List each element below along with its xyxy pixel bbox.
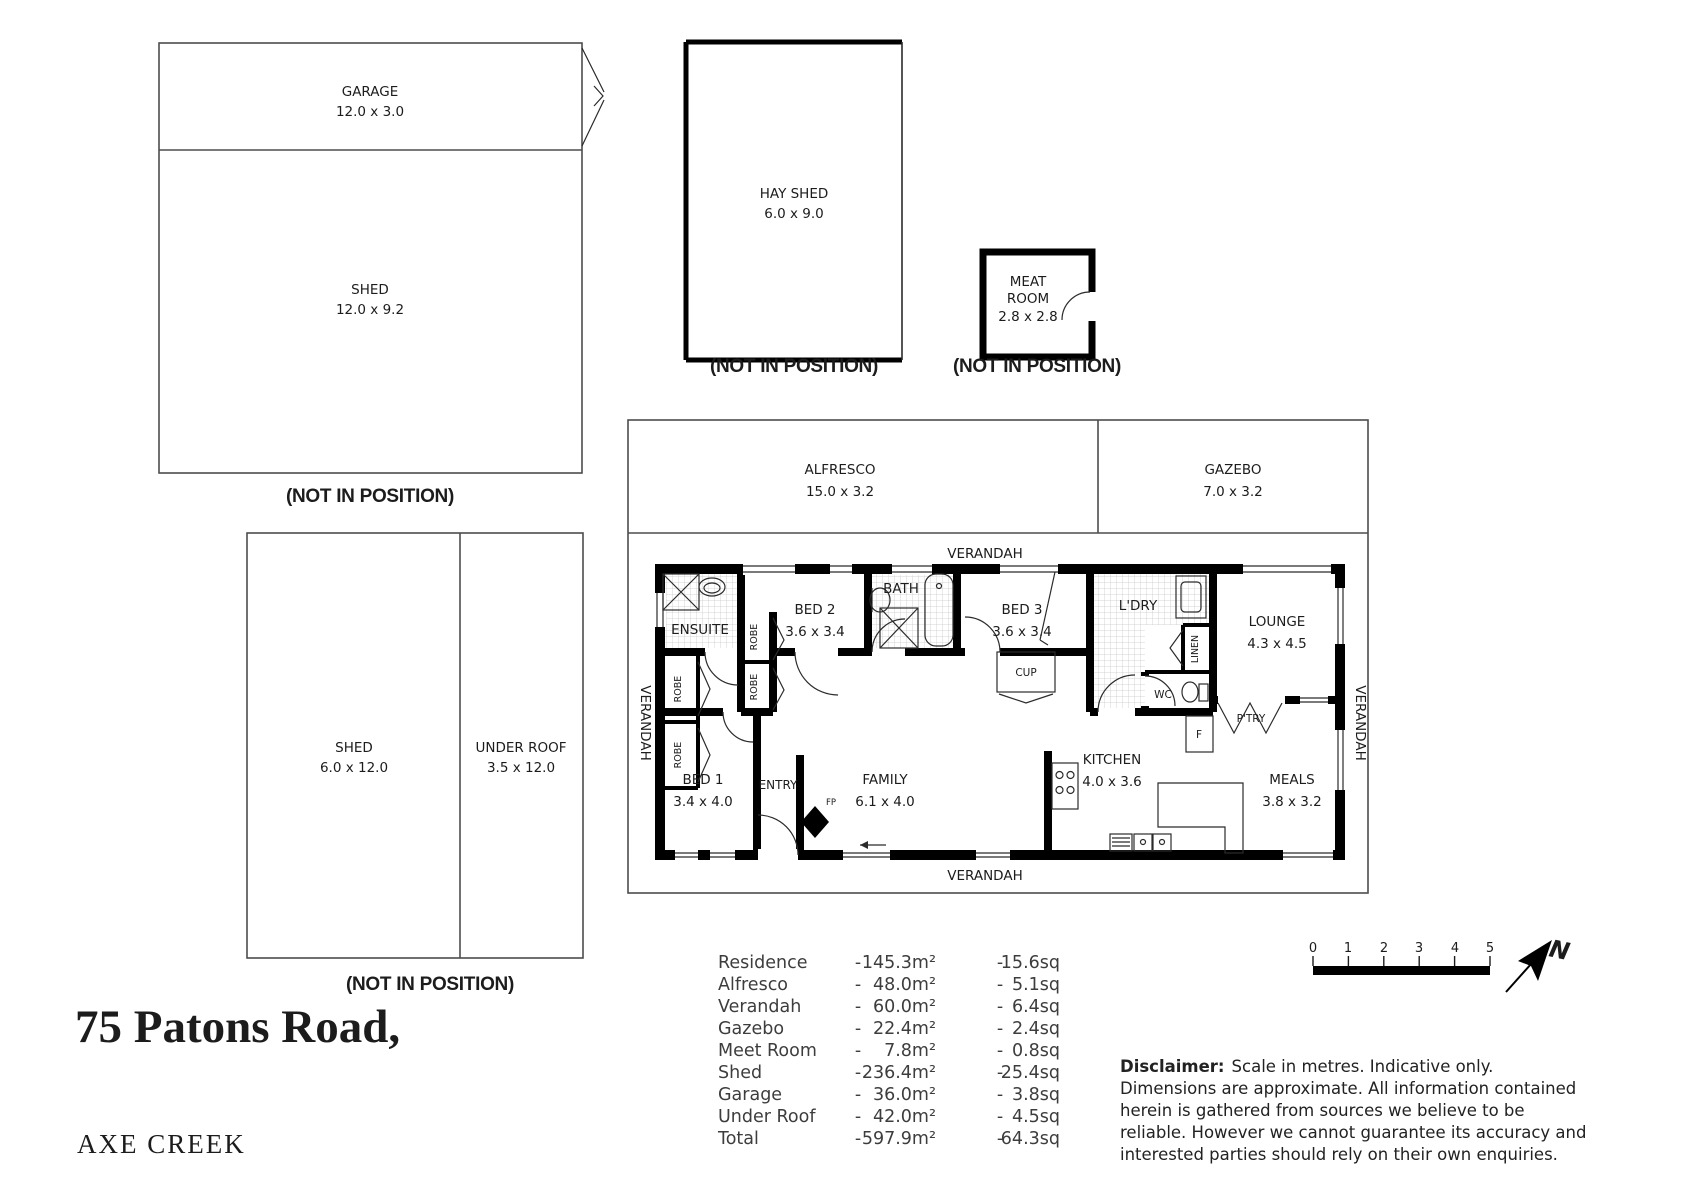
disclaimer-line-5: interested parties should rely on their … <box>1120 1145 1558 1164</box>
hay-shed-label: HAY SHED <box>760 186 829 202</box>
area-sq: 5.1sq <box>1012 975 1060 995</box>
dash: - <box>855 1063 861 1083</box>
area-name: Gazebo <box>718 1019 784 1039</box>
under-roof-label: UNDER ROOF <box>476 740 567 756</box>
verandah-label-left: VERANDAH <box>637 685 653 760</box>
lounge-dims: 4.3 x 4.5 <box>1247 636 1307 652</box>
bed3-dims: 3.6 x 3.4 <box>992 624 1052 640</box>
bed2-label: BED 2 <box>794 602 835 618</box>
scale-tick-label: 5 <box>1486 941 1494 956</box>
shed-large-dims: 12.0 x 9.2 <box>336 302 404 318</box>
kitchen-dims: 4.0 x 3.6 <box>1082 774 1142 790</box>
disclaimer-heading: Disclaimer: <box>1120 1057 1225 1076</box>
garage-label: GARAGE <box>342 84 399 100</box>
not-in-position-label: (NOT IN POSITION) <box>953 356 1121 377</box>
disclaimer-line-4: reliable. However we cannot guarantee it… <box>1120 1123 1586 1142</box>
table-row: Garage - 36.0m² - 3.8sq <box>718 1085 1060 1105</box>
area-sq: 0.8sq <box>1012 1041 1060 1061</box>
dash: - <box>855 975 861 995</box>
bath-label: BATH <box>883 581 919 597</box>
title-block: 75 Patons Road, AXE CREEK <box>75 1001 400 1159</box>
garage-shed-outbuilding: GARAGE 12.0 x 3.0 SHED 12.0 x 9.2 (NOT I… <box>159 43 604 507</box>
cup-label: CUP <box>1015 667 1036 679</box>
alfresco-label: ALFRESCO <box>804 462 875 478</box>
area-m2: 236.4m² <box>862 1063 936 1083</box>
area-name: Verandah <box>718 997 801 1017</box>
meals-dims: 3.8 x 3.2 <box>1262 794 1322 810</box>
robe-label: ROBE <box>673 742 684 769</box>
dash: - <box>855 1107 861 1127</box>
gazebo-label: GAZEBO <box>1204 462 1261 478</box>
laundry-label: L'DRY <box>1119 598 1158 614</box>
hay-shed-dims: 6.0 x 9.0 <box>764 206 824 222</box>
scale-bar-rule <box>1313 966 1490 975</box>
garage-door-notch <box>582 48 604 146</box>
bed1-dims: 3.4 x 4.0 <box>673 794 733 810</box>
bed3-label: BED 3 <box>1001 602 1042 618</box>
area-sq: 6.4sq <box>1012 997 1060 1017</box>
disclaimer-line-2: Dimensions are approximate. All informat… <box>1120 1079 1576 1098</box>
family-dims: 6.1 x 4.0 <box>855 794 915 810</box>
table-row: Under Roof - 42.0m² - 4.5sq <box>718 1107 1060 1127</box>
not-in-position-label: (NOT IN POSITION) <box>710 356 878 377</box>
area-m2: 145.3m² <box>862 953 936 973</box>
alfresco-dims: 15.0 x 3.2 <box>806 484 874 500</box>
table-row: Total - 597.9m² - 64.3sq <box>717 1129 1060 1149</box>
table-row: Shed - 236.4m² - 25.4sq <box>718 1063 1060 1083</box>
area-m2: 597.9m² <box>862 1129 936 1149</box>
verandah-label-top: VERANDAH <box>947 546 1022 562</box>
area-sq: 25.4sq <box>1001 1063 1060 1083</box>
scale-tick-label: 3 <box>1415 941 1423 956</box>
area-m2: 7.8m² <box>884 1041 936 1061</box>
floorplan-page: GARAGE 12.0 x 3.0 SHED 12.0 x 9.2 (NOT I… <box>0 0 1681 1200</box>
table-row: Meet Room - 7.8m² - 0.8sq <box>718 1041 1060 1061</box>
bed1-label: BED 1 <box>682 772 723 788</box>
robe-label: ROBE <box>673 676 684 703</box>
dash: - <box>997 1107 1003 1127</box>
meat-room-label-1: MEAT <box>1010 274 1047 290</box>
scale-tick-label: 1 <box>1344 941 1352 956</box>
meat-room-outbuilding: MEAT ROOM 2.8 x 2.8 (NOT IN POSITION) <box>953 252 1121 377</box>
kitchen-label: KITCHEN <box>1083 752 1142 768</box>
ensuite-label: ENSUITE <box>671 622 729 638</box>
lounge-meals-opening <box>1300 695 1328 705</box>
hay-shed-outbuilding: HAY SHED 6.0 x 9.0 (NOT IN POSITION) <box>686 42 902 377</box>
dash: - <box>855 953 861 973</box>
area-name: Under Roof <box>718 1107 816 1127</box>
area-name: Alfresco <box>718 975 788 995</box>
dash: - <box>855 1129 861 1149</box>
north-arrow-icon: N <box>1506 934 1572 992</box>
area-m2: 42.0m² <box>873 1107 936 1127</box>
area-name: Shed <box>718 1063 762 1083</box>
shed-underroof-outbuilding: SHED 6.0 x 12.0 UNDER ROOF 3.5 x 12.0 (N… <box>247 533 583 995</box>
fireplace-label: FP <box>826 798 836 808</box>
area-m2: 22.4m² <box>873 1019 936 1039</box>
meat-room-door-gap <box>1086 292 1098 321</box>
property-address: 75 Patons Road, <box>75 1001 400 1053</box>
area-m2: 36.0m² <box>873 1085 936 1105</box>
verandah-label-right: VERANDAH <box>1352 685 1368 760</box>
not-in-position-label: (NOT IN POSITION) <box>346 974 514 995</box>
scale-tick-label: 0 <box>1309 941 1317 956</box>
front-door-gap <box>758 849 798 861</box>
scale-tick-label: 2 <box>1380 941 1388 956</box>
property-suburb: AXE CREEK <box>77 1129 246 1159</box>
disclaimer-block: Disclaimer:Scale in metres. Indicative o… <box>1120 1057 1586 1164</box>
area-sq: 3.8sq <box>1012 1085 1060 1105</box>
pantry-label: P'TRY <box>1237 713 1266 725</box>
shed-small-dims: 6.0 x 12.0 <box>320 760 388 776</box>
scale-bar-ticks <box>1313 956 1490 966</box>
dash: - <box>855 1041 861 1061</box>
dash: - <box>855 1085 861 1105</box>
robe-label: ROBE <box>749 674 760 701</box>
table-row: Alfresco - 48.0m² - 5.1sq <box>718 975 1060 995</box>
family-label: FAMILY <box>862 772 908 788</box>
main-residence-plan: ALFRESCO 15.0 x 3.2 GAZEBO 7.0 x 3.2 VER… <box>628 420 1368 893</box>
dash: - <box>855 1019 861 1039</box>
not-in-position-label: (NOT IN POSITION) <box>286 486 454 507</box>
area-m2: 48.0m² <box>873 975 936 995</box>
fridge-label: F <box>1196 729 1202 741</box>
shed-large-label: SHED <box>351 282 389 298</box>
dash: - <box>997 975 1003 995</box>
dash: - <box>997 1041 1003 1061</box>
disclaimer-text: Scale in metres. Indicative only. <box>1232 1057 1494 1076</box>
area-sq: 4.5sq <box>1012 1107 1060 1127</box>
floorplan-drawing: GARAGE 12.0 x 3.0 SHED 12.0 x 9.2 (NOT I… <box>0 0 1681 1200</box>
under-roof-dims: 3.5 x 12.0 <box>487 760 555 776</box>
area-table: Residence - 145.3m² - 15.6sq Alfresco - … <box>717 953 1060 1149</box>
dash: - <box>997 1085 1003 1105</box>
area-name: Garage <box>718 1085 782 1105</box>
wc-label: WC <box>1154 689 1172 701</box>
scale-bar: 0 1 2 3 4 5 <box>1309 941 1494 975</box>
table-row: Verandah - 60.0m² - 6.4sq <box>718 997 1060 1017</box>
meat-room-dims: 2.8 x 2.8 <box>998 309 1058 325</box>
bed2-dims: 3.6 x 3.4 <box>785 624 845 640</box>
dash: - <box>997 997 1003 1017</box>
area-sq: 64.3sq <box>1001 1129 1060 1149</box>
gazebo-dims: 7.0 x 3.2 <box>1203 484 1263 500</box>
meals-label: MEALS <box>1269 772 1315 788</box>
dash: - <box>855 997 861 1017</box>
garage-dims: 12.0 x 3.0 <box>336 104 404 120</box>
scale-tick-label: 4 <box>1451 941 1459 956</box>
robe-label: ROBE <box>749 624 760 651</box>
disclaimer-line-1: Disclaimer:Scale in metres. Indicative o… <box>1120 1057 1493 1076</box>
area-name: Total <box>717 1129 759 1149</box>
disclaimer-line-3: herein is gathered from sources we belie… <box>1120 1101 1525 1120</box>
area-name: Residence <box>718 953 807 973</box>
table-row: Gazebo - 22.4m² - 2.4sq <box>718 1019 1060 1039</box>
linen-label: LINEN <box>1190 635 1201 663</box>
table-row: Residence - 145.3m² - 15.6sq <box>718 953 1060 973</box>
area-name: Meet Room <box>718 1041 817 1061</box>
verandah-label-bottom: VERANDAH <box>947 868 1022 884</box>
north-label: N <box>1547 934 1572 966</box>
shed-small-label: SHED <box>335 740 373 756</box>
area-sq: 2.4sq <box>1012 1019 1060 1039</box>
meat-room-label-2: ROOM <box>1007 291 1049 307</box>
dash: - <box>997 1019 1003 1039</box>
entry-label: ENTRY <box>759 778 798 792</box>
lounge-label: LOUNGE <box>1249 614 1306 630</box>
area-m2: 60.0m² <box>873 997 936 1017</box>
area-sq: 15.6sq <box>1001 953 1060 973</box>
